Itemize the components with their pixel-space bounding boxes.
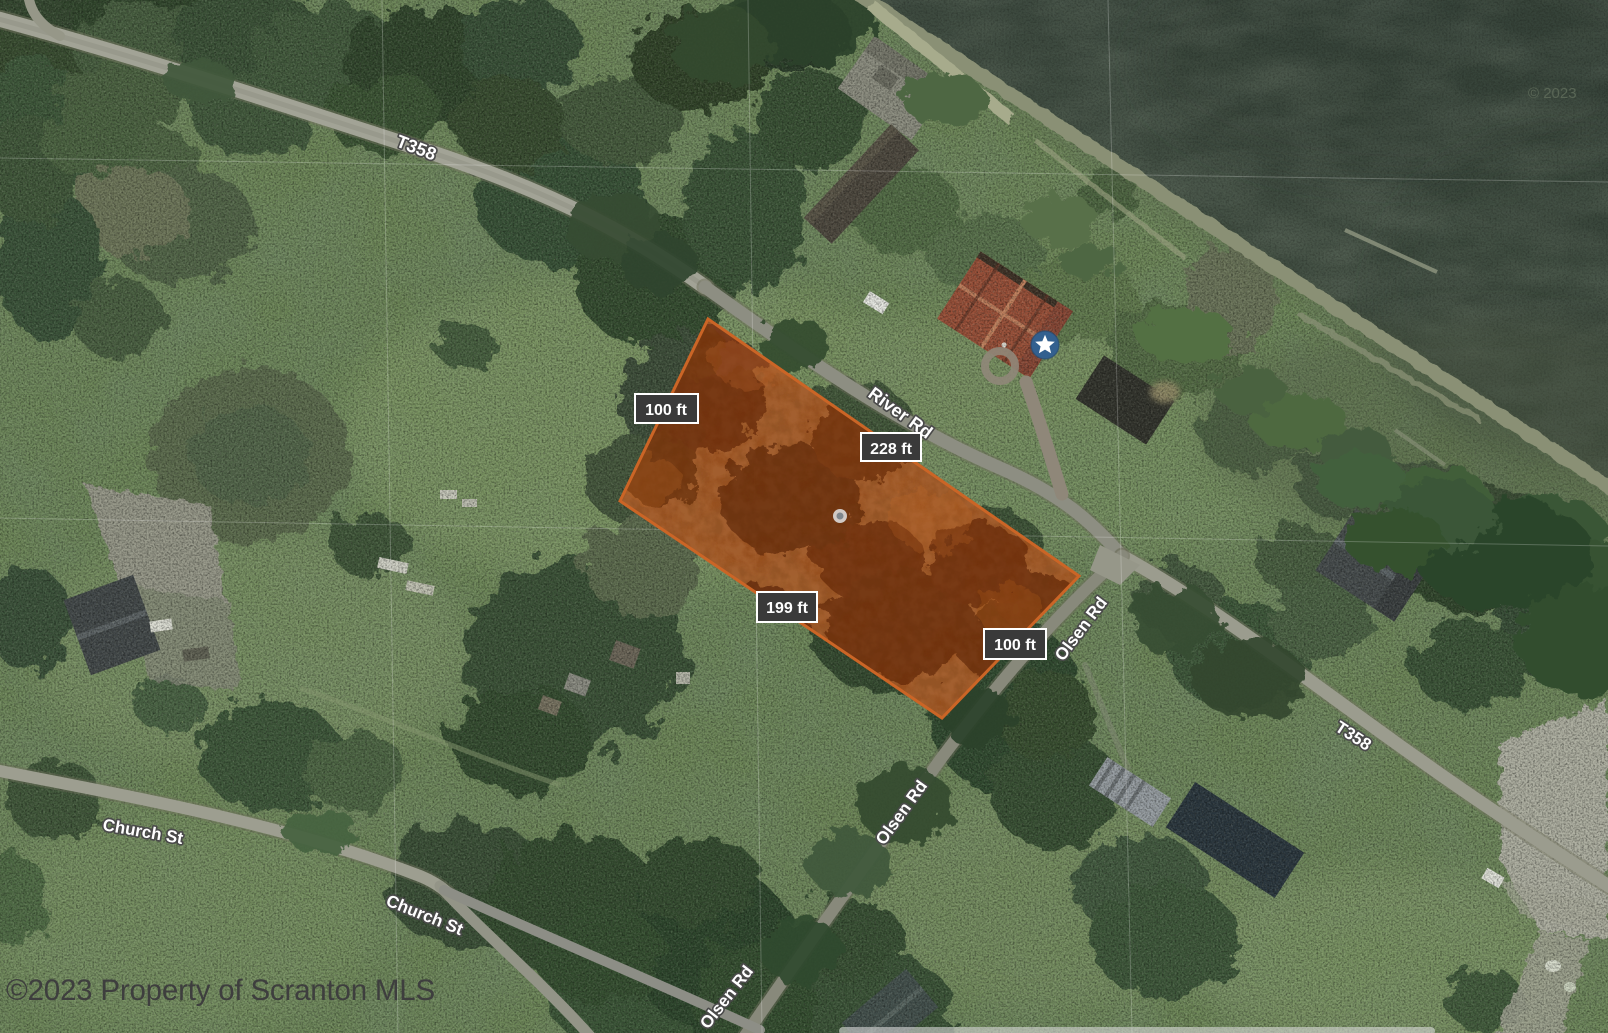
svg-text:©2023 Property of Scranton MLS: ©2023 Property of Scranton MLS (6, 974, 435, 1007)
svg-text:100 ft: 100 ft (645, 402, 687, 419)
svg-text:199 ft: 199 ft (766, 600, 808, 617)
svg-text:100 ft: 100 ft (994, 637, 1036, 654)
svg-text:228 ft: 228 ft (870, 441, 912, 458)
